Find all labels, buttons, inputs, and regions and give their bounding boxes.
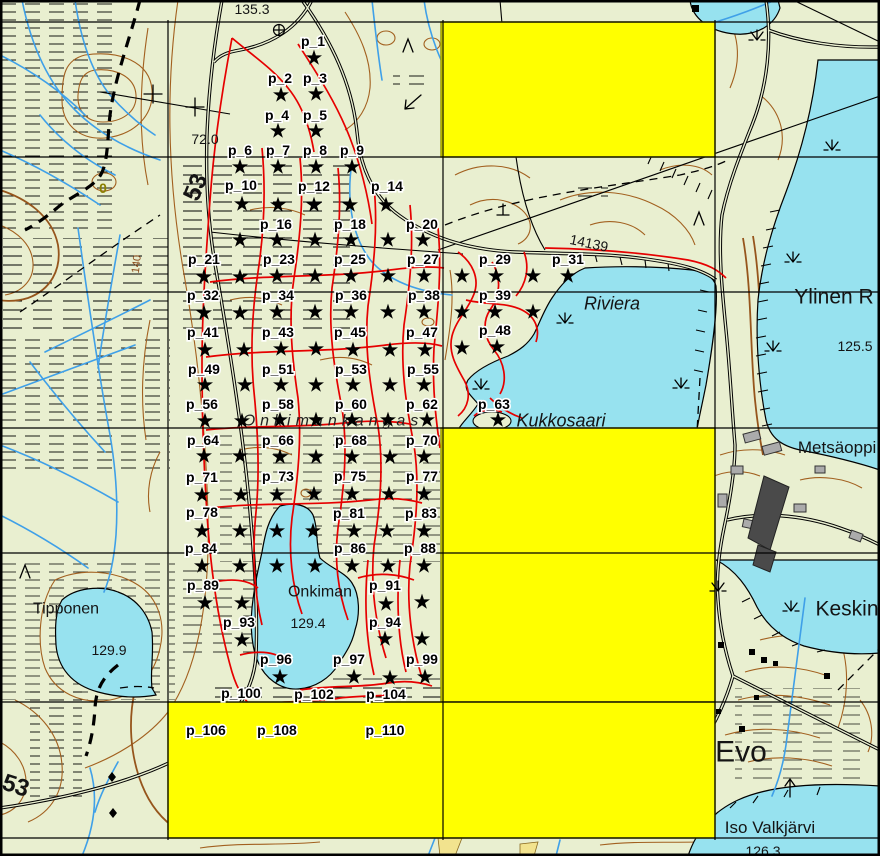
map-label: Keskin [815, 597, 878, 620]
sample-point-label[interactable]: p_77 [406, 468, 438, 484]
map-label: Kukkosaari [516, 410, 606, 430]
sample-point-label[interactable]: p_43 [262, 324, 294, 340]
highlight-cell [168, 702, 715, 838]
sample-point-label[interactable]: p_108 [257, 722, 297, 738]
sample-point-label[interactable]: p_51 [262, 361, 294, 377]
map-viewport[interactable]: 135.372.0535314014139RivieraYlinen R125.… [0, 0, 880, 856]
sample-point-label[interactable]: p_94 [369, 614, 401, 630]
sample-point-label[interactable]: p_75 [334, 468, 366, 484]
sample-point-label[interactable]: p_7 [266, 142, 290, 158]
map-label: 125.5 [837, 338, 872, 354]
sample-point-label[interactable]: p_60 [335, 396, 367, 412]
sample-point-label[interactable]: p_32 [187, 287, 219, 303]
sample-point-label[interactable]: p_45 [334, 324, 366, 340]
map-label: Ylinen R [794, 285, 873, 308]
sample-point-label[interactable]: p_5 [303, 107, 327, 123]
sample-point-label[interactable]: p_66 [262, 432, 294, 448]
sample-point-label[interactable]: p_2 [268, 70, 292, 86]
sample-point-label[interactable]: p_25 [334, 251, 366, 267]
sample-point-label[interactable]: p_102 [294, 686, 334, 702]
highlight-cell [441, 428, 715, 702]
sample-point-label[interactable]: p_104 [366, 686, 406, 702]
sample-point-label[interactable]: p_88 [404, 540, 436, 556]
map-label: Evo [715, 736, 767, 769]
sample-point-label[interactable]: p_38 [408, 287, 440, 303]
sample-point-label[interactable]: p_4 [265, 107, 289, 123]
map-label: Iso Valkjärvi [725, 818, 815, 837]
map-label: Riviera [584, 293, 640, 313]
sample-point-label[interactable]: p_110 [366, 722, 405, 738]
sample-point-label[interactable]: p_16 [260, 216, 292, 232]
sample-point-label[interactable]: p_96 [260, 651, 292, 667]
sample-point-label[interactable]: p_86 [334, 540, 366, 556]
sample-point-label[interactable]: p_10 [225, 177, 257, 193]
sample-point-label[interactable]: p_89 [187, 577, 219, 593]
sample-point-label[interactable]: p_14 [371, 178, 403, 194]
map-label: Metsäoppil [798, 438, 880, 457]
sample-point-label[interactable]: p_48 [479, 322, 511, 338]
sample-point-label[interactable]: p_71 [186, 469, 218, 485]
sample-point-label[interactable]: p_12 [298, 178, 330, 194]
sample-point-label[interactable]: p_106 [186, 722, 226, 738]
sample-point-label[interactable]: p_58 [262, 396, 294, 412]
sample-point-label[interactable]: p_99 [406, 651, 438, 667]
sample-point-label[interactable]: p_73 [262, 468, 294, 484]
sample-point-label[interactable]: p_83 [405, 505, 437, 521]
sample-point-label[interactable]: p_55 [407, 361, 439, 377]
map-label: Tipponen [33, 601, 99, 618]
sample-point-label[interactable]: p_100 [221, 685, 261, 701]
map-canvas[interactable]: 135.372.0535314014139RivieraYlinen R125.… [0, 0, 880, 856]
sample-point-label[interactable]: p_41 [187, 324, 219, 340]
sample-point-label[interactable]: p_84 [185, 540, 217, 556]
sample-point-label[interactable]: p_18 [334, 216, 366, 232]
sample-point-label[interactable]: p_56 [186, 396, 218, 412]
sample-point-label[interactable]: p_70 [406, 432, 438, 448]
sample-point-label[interactable]: p_62 [406, 396, 438, 412]
map-label: 129.9 [91, 642, 126, 658]
map-label: 72.0 [191, 131, 218, 147]
map-label: 135.3 [234, 1, 269, 17]
sample-point-label[interactable]: p_81 [333, 505, 365, 521]
map-label: Onkimankangas [243, 413, 424, 430]
sample-point-label[interactable]: p_34 [262, 287, 294, 303]
map-label: 0 [99, 180, 107, 196]
sample-point-label[interactable]: p_23 [263, 251, 295, 267]
sample-point-label[interactable]: p_93 [223, 614, 255, 630]
sample-point-label[interactable]: p_6 [228, 142, 252, 158]
sample-point-label[interactable]: p_21 [188, 251, 220, 267]
sample-point-label[interactable]: p_31 [552, 251, 584, 267]
sample-point-label[interactable]: p_1 [301, 33, 325, 49]
sample-point-label[interactable]: p_78 [186, 504, 218, 520]
sample-point-label[interactable]: p_39 [479, 287, 511, 303]
sample-point-label[interactable]: p_47 [406, 324, 438, 340]
sample-point-label[interactable]: p_29 [479, 251, 511, 267]
map-label: 140 [130, 254, 144, 274]
sample-point-label[interactable]: p_64 [187, 432, 219, 448]
highlight-cell [441, 22, 715, 157]
sample-point-label[interactable]: p_36 [335, 287, 367, 303]
sample-point-label[interactable]: p_49 [188, 361, 220, 377]
circle-plus-icon [274, 25, 285, 36]
sample-point-label[interactable]: p_63 [478, 396, 510, 412]
sample-point-label[interactable]: p_3 [303, 70, 327, 86]
sample-point-label[interactable]: p_68 [335, 432, 367, 448]
map-label: Onkiman [288, 584, 352, 601]
sample-point-label[interactable]: p_8 [303, 142, 327, 158]
sample-point-label[interactable]: p_53 [335, 361, 367, 377]
sample-point-label[interactable]: p_9 [340, 142, 364, 158]
sample-point-label[interactable]: p_97 [333, 651, 365, 667]
map-label: 129.4 [290, 615, 325, 631]
sample-point-label[interactable]: p_27 [407, 251, 439, 267]
sample-point-label[interactable]: p_91 [369, 577, 401, 593]
sample-point-label[interactable]: p_20 [406, 216, 438, 232]
